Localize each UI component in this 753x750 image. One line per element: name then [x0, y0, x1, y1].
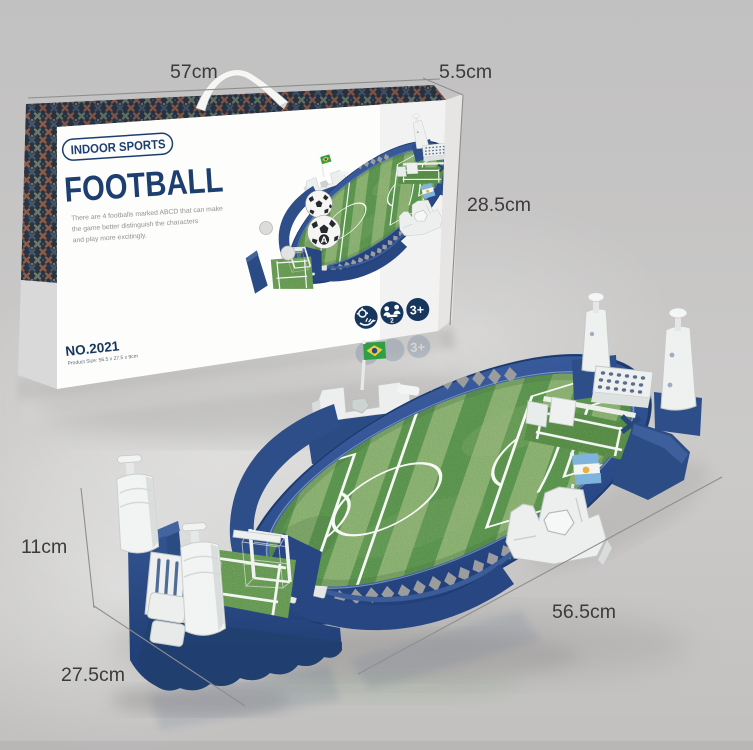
- svg-text:28.5cm: 28.5cm: [467, 194, 531, 216]
- svg-text:A: A: [321, 235, 328, 246]
- svg-text:57cm: 57cm: [170, 61, 218, 83]
- svg-text:5.5cm: 5.5cm: [439, 61, 492, 83]
- svg-text:3+: 3+: [409, 303, 424, 318]
- svg-text:3+: 3+: [410, 339, 426, 355]
- svg-text:27.5cm: 27.5cm: [61, 664, 125, 686]
- svg-text:56.5cm: 56.5cm: [552, 601, 616, 623]
- svg-text:11cm: 11cm: [21, 536, 67, 558]
